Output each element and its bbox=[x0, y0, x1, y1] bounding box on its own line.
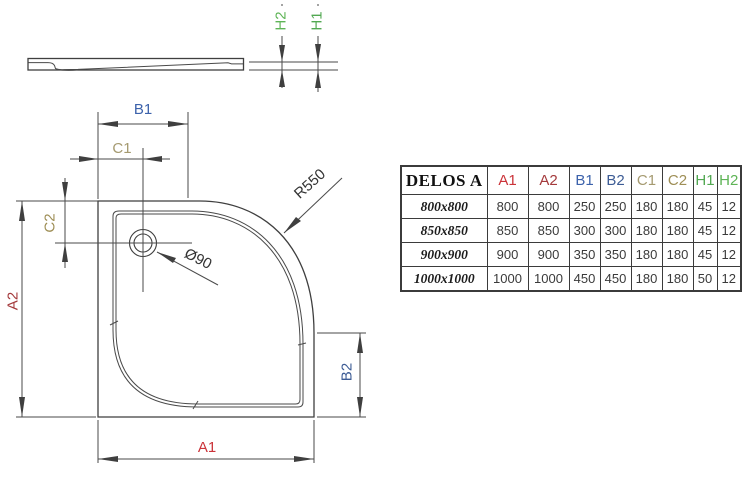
cell-value: 180 bbox=[631, 219, 662, 243]
arrowhead bbox=[279, 70, 285, 87]
table-row: 850x850 850 850 300 300 180 180 45 12 bbox=[401, 219, 741, 243]
size-row-label: 900x900 bbox=[401, 243, 487, 267]
cell-value: 850 bbox=[487, 219, 528, 243]
rim-joint-tick bbox=[193, 401, 198, 409]
tray-profile-inner-slope bbox=[29, 63, 244, 70]
cell-value: 900 bbox=[528, 243, 569, 267]
cell-value: 300 bbox=[569, 219, 600, 243]
arrowhead bbox=[62, 182, 68, 201]
rim-joint-tick bbox=[110, 321, 118, 325]
arrowhead bbox=[357, 333, 363, 353]
cell-value: 450 bbox=[600, 267, 631, 292]
dim-label-c1: C1 bbox=[112, 140, 131, 157]
cell-value: 250 bbox=[569, 195, 600, 219]
table-title: DELOS A bbox=[401, 166, 487, 195]
column-header-h1: H1 bbox=[693, 166, 717, 195]
arrowhead bbox=[98, 121, 118, 127]
tray-inner-rim-outer bbox=[113, 211, 303, 407]
cell-value: 180 bbox=[631, 195, 662, 219]
cell-value: 180 bbox=[662, 243, 693, 267]
dim-label-a2: A2 bbox=[5, 292, 22, 310]
column-header-a2: A2 bbox=[528, 166, 569, 195]
cell-value: 450 bbox=[569, 267, 600, 292]
arrowhead bbox=[143, 156, 162, 162]
size-row-label: 800x800 bbox=[401, 195, 487, 219]
column-header-b1: B1 bbox=[569, 166, 600, 195]
cell-value: 12 bbox=[717, 219, 741, 243]
column-header-h2: H2 bbox=[717, 166, 741, 195]
rim-joint-tick bbox=[298, 343, 306, 345]
column-header-b2: B2 bbox=[600, 166, 631, 195]
cell-value: 180 bbox=[662, 219, 693, 243]
arrowhead bbox=[357, 397, 363, 417]
cell-value: 12 bbox=[717, 195, 741, 219]
tray-profile-outline bbox=[28, 59, 244, 71]
cell-value: 1000 bbox=[487, 267, 528, 292]
arrowhead bbox=[19, 201, 25, 221]
arrowhead bbox=[315, 44, 321, 62]
arrowhead bbox=[168, 121, 188, 127]
cell-value: 180 bbox=[631, 243, 662, 267]
arrowhead bbox=[284, 217, 301, 233]
table-row: 800x800 800 800 250 250 180 180 45 12 bbox=[401, 195, 741, 219]
arrowhead bbox=[315, 70, 321, 88]
technical-drawing-page: H2 H1 bbox=[0, 0, 750, 477]
table-header-row: DELOS A A1 A2 B1 B2 C1 C2 H1 H2 bbox=[401, 166, 741, 195]
cell-value: 900 bbox=[487, 243, 528, 267]
cell-value: 50 bbox=[693, 267, 717, 292]
side-profile-view: H2 H1 bbox=[28, 4, 338, 92]
table-row: 1000x1000 1000 1000 450 450 180 180 50 1… bbox=[401, 267, 741, 292]
cell-value: 180 bbox=[662, 267, 693, 292]
dim-label-h2: H2 bbox=[273, 11, 290, 30]
cell-value: 45 bbox=[693, 195, 717, 219]
dim-label-a1: A1 bbox=[198, 439, 216, 456]
arrowhead bbox=[19, 397, 25, 417]
cell-value: 180 bbox=[662, 195, 693, 219]
cell-value: 12 bbox=[717, 267, 741, 292]
cell-value: 45 bbox=[693, 219, 717, 243]
cell-value: 800 bbox=[528, 195, 569, 219]
column-header-c1: C1 bbox=[631, 166, 662, 195]
dim-label-b1: B1 bbox=[134, 101, 152, 118]
cell-value: 350 bbox=[600, 243, 631, 267]
top-view: B1 C1 C2 A2 A1 B2 bbox=[5, 101, 367, 463]
radius-label: R550 bbox=[291, 166, 329, 203]
size-row-label: 1000x1000 bbox=[401, 267, 487, 292]
arrowhead bbox=[294, 456, 314, 462]
dim-label-h1: H1 bbox=[309, 11, 326, 30]
cell-value: 45 bbox=[693, 243, 717, 267]
arrowhead bbox=[157, 252, 176, 263]
cell-value: 800 bbox=[487, 195, 528, 219]
cell-value: 850 bbox=[528, 219, 569, 243]
arrowhead bbox=[62, 243, 68, 262]
arrowhead bbox=[79, 156, 98, 162]
cell-value: 350 bbox=[569, 243, 600, 267]
cell-value: 1000 bbox=[528, 267, 569, 292]
arrowhead bbox=[98, 456, 118, 462]
cell-value: 300 bbox=[600, 219, 631, 243]
dim-label-c2: C2 bbox=[42, 213, 59, 232]
table-row: 900x900 900 900 350 350 180 180 45 12 bbox=[401, 243, 741, 267]
spec-table: DELOS A A1 A2 B1 B2 C1 C2 H1 H2 800x800 … bbox=[400, 165, 742, 292]
cell-value: 12 bbox=[717, 243, 741, 267]
size-row-label: 850x850 bbox=[401, 219, 487, 243]
cell-value: 180 bbox=[631, 267, 662, 292]
arrowhead bbox=[279, 45, 285, 62]
drain-diameter-label: Ø90 bbox=[182, 245, 215, 273]
column-header-a1: A1 bbox=[487, 166, 528, 195]
dim-label-b2: B2 bbox=[339, 363, 356, 381]
cell-value: 250 bbox=[600, 195, 631, 219]
column-header-c2: C2 bbox=[662, 166, 693, 195]
